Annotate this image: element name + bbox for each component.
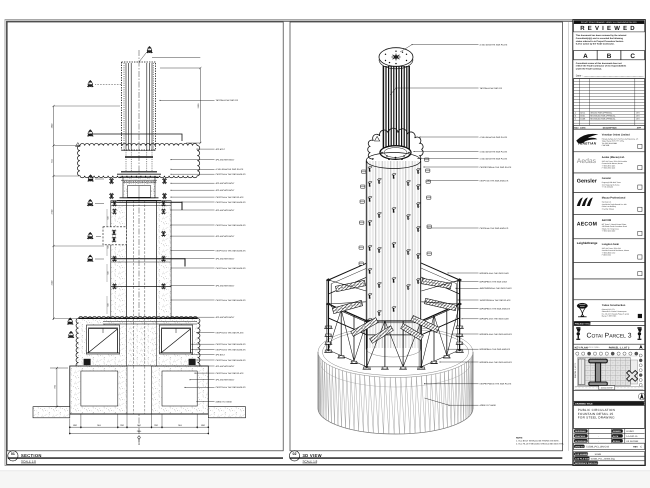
svg-text:2: 2 xyxy=(69,319,70,322)
svg-text:REV.: REV. xyxy=(574,126,579,129)
svg-text:TBTP8mmTHK G&S DS: TBTP8mmTHK G&S DS xyxy=(480,87,503,90)
svg-text:CBTP5mm THK G&S ANGLES: CBTP5mm THK G&S ANGLES xyxy=(480,227,509,230)
svg-text:500: 500 xyxy=(106,216,109,219)
svg-text:04-08: 04-08 xyxy=(580,118,585,121)
svg-text:500: 500 xyxy=(106,271,109,274)
svg-text:4P3 ANCHOR BOLT: 4P3 ANCHOR BOLT xyxy=(216,235,236,238)
svg-text:SCALE 1:8: SCALE 1:8 xyxy=(303,459,318,463)
svg-text:3D VIEW: 3D VIEW xyxy=(303,453,322,458)
svg-text:DESIGNED: DESIGNED xyxy=(575,430,586,433)
svg-text:VENETIAN: VENETIAN xyxy=(578,141,597,145)
svg-text:LEUNG: LEUNG xyxy=(626,430,634,433)
svg-text:150P8TP50mm THK G&S PLATE: 150P8TP50mm THK G&S PLATE xyxy=(480,299,512,302)
svg-text:02: 02 xyxy=(293,452,297,456)
svg-text:CHECKED: CHECKED xyxy=(575,435,586,438)
svg-text:FOR STEEL DRAWING: FOR STEEL DRAWING xyxy=(578,416,615,420)
svg-text:50P50P8mm THK G&S DIAG: 50P50P8mm THK G&S DIAG xyxy=(480,281,508,284)
svg-text:Langdon Seah: Langdon Seah xyxy=(602,243,620,246)
svg-text:PROJECT TITLE: PROJECT TITLE xyxy=(575,323,592,326)
svg-text:50P50P8mm THK G&S ANGLES: 50P50P8mm THK G&S ANGLES xyxy=(480,307,511,310)
svg-text:CBTPT5mm THK G&S ANGLES: CBTPT5mm THK G&S ANGLES xyxy=(216,348,247,351)
svg-text:CBTPT5mm THK G&S PLATE: CBTPT5mm THK G&S PLATE xyxy=(216,331,245,334)
svg-text:Consultant review of this docu: Consultant review of this document does … xyxy=(576,62,622,65)
svg-text:APPROVED: APPROVED xyxy=(575,440,587,443)
svg-text:2: 2 xyxy=(148,48,149,51)
svg-text:2: 2 xyxy=(89,201,90,204)
svg-text:ISSUED FOR APPROVAL: ISSUED FOR APPROVAL xyxy=(590,112,612,115)
svg-text:RE-ISSUED FOR APPROVAL: RE-ISSUED FOR APPROVAL xyxy=(590,118,615,121)
svg-text:Yadea Construction: Yadea Construction xyxy=(602,304,626,307)
svg-text:SCALE: SCALE xyxy=(613,440,621,443)
svg-text:AECOM: AECOM xyxy=(602,219,611,222)
svg-text:- N.T.S 1:7,500 -: - N.T.S 1:7,500 - xyxy=(586,346,600,349)
svg-text:REFERENCE DWG FILE NAME: REFERENCE DWG FILE NAME xyxy=(575,462,605,465)
svg-text:A 345 40mmTHK G&S PLATE: A 345 40mmTHK G&S PLATE xyxy=(480,43,508,46)
svg-text:B: B xyxy=(607,53,612,60)
svg-text:C: C xyxy=(630,53,635,60)
svg-text:under the Trade Contract.: under the Trade Contract. xyxy=(576,68,602,71)
svg-text:50P50P8mm THK G&S ANGLES: 50P50P8mm THK G&S ANGLES xyxy=(480,348,511,351)
svg-text:4P3 ANCHOR BOLT: 4P3 ANCHOR BOLT xyxy=(216,158,236,161)
svg-text:Consultant(s)(s) and is accord: Consultant(s)(s) and is accorded the fol… xyxy=(576,37,624,40)
svg-text:RE-ISSUED FOR APPROVAL: RE-ISSUED FOR APPROVAL xyxy=(590,115,615,118)
svg-text:CBTPT5mm THK G&S PLATE: CBTPT5mm THK G&S PLATE xyxy=(216,196,245,199)
svg-text:4 345 40mmTHK G&S PLATE: 4 345 40mmTHK G&S PLATE xyxy=(480,150,508,153)
svg-text:4P3 ANCHOR BOLT: 4P3 ANCHOR BOLT xyxy=(216,182,236,185)
svg-text:500: 500 xyxy=(106,303,109,306)
svg-text:2: 2 xyxy=(89,256,90,259)
svg-text:CAD NUMBER: CAD NUMBER xyxy=(575,453,589,456)
svg-text:DRAWN: DRAWN xyxy=(613,430,621,433)
svg-text:CBTPT5mm THK G&S ANGLES: CBTPT5mm THK G&S ANGLES xyxy=(216,224,247,227)
svg-text:CAD FILE NAME: CAD FILE NAME xyxy=(575,458,591,461)
svg-text:Gensler: Gensler xyxy=(602,177,611,180)
svg-text:A286E R.C BASE: A286E R.C BASE xyxy=(480,404,497,407)
svg-text:02-14: 02-14 xyxy=(580,112,585,115)
svg-text:Venetian Orient Limited: Venetian Orient Limited xyxy=(602,133,630,136)
svg-text:A: A xyxy=(583,53,588,60)
svg-text:NOTE:: NOTE: xyxy=(516,437,523,440)
svg-text:50P50P5.4mm THK G&S DIAG: 50P50P5.4mm THK G&S DIAG xyxy=(480,318,509,321)
svg-text:4P3 ANCHOR BOLT: 4P3 ANCHOR BOLT xyxy=(216,365,236,368)
svg-text:DRAWING TITLE: DRAWING TITLE xyxy=(575,403,593,406)
svg-text:5150B_PCL_BN-D10: 5150B_PCL_BN-D10 xyxy=(586,445,609,448)
svg-text:4P3 ANCHOR BOLT: 4P3 ANCHOR BOLT xyxy=(216,379,236,382)
svg-text:CBTPT5mm THK G&S ANGLES: CBTPT5mm THK G&S ANGLES xyxy=(216,173,247,176)
svg-text:4P3 BOLT: 4P3 BOLT xyxy=(216,353,226,356)
svg-text:APP.: APP. xyxy=(637,126,642,129)
svg-text:2: 2 xyxy=(89,234,90,237)
svg-text:CBTPT5mm THK G&S PLATE: CBTPT5mm THK G&S PLATE xyxy=(216,372,245,375)
svg-text:4P3 ANCHOR BOLT: 4P3 ANCHOR BOLT xyxy=(216,285,236,288)
svg-text:50P50P5.4mm THK G&S ANGLES: 50P50P5.4mm THK G&S ANGLES xyxy=(480,361,513,364)
svg-text:5150B_PCL_2035S.dwg: 5150B_PCL_2035S.dwg xyxy=(591,458,616,461)
svg-text:4P3 BOLT: 4P3 BOLT xyxy=(216,148,226,151)
svg-text:5.4 for action by the Trade Co: 5.4 for action by the Trade Contractor. xyxy=(576,43,615,46)
svg-text:5150B: 5150B xyxy=(595,453,602,456)
svg-text:50P50P5.4mm THK G&S DIAG: 50P50P5.4mm THK G&S DIAG xyxy=(480,272,509,275)
svg-text:2: 2 xyxy=(89,82,90,85)
svg-text:SCALE 1:8: SCALE 1:8 xyxy=(21,459,36,463)
svg-text:CBTP8TP50mm THK G&S PLATE: CBTP8TP50mm THK G&S PLATE xyxy=(480,383,512,386)
svg-text:COTAI STRIP: COTAI STRIP xyxy=(601,387,613,390)
svg-text:This document has been reviewe: This document has been reviewed by the r… xyxy=(576,34,627,37)
svg-text:2: 2 xyxy=(90,176,91,179)
svg-text:TBTP8mmTHK G&S DS: TBTP8mmTHK G&S DS xyxy=(216,99,239,102)
svg-text:14-AUG-15: 14-AUG-15 xyxy=(626,435,638,438)
svg-text:Gensler: Gensler xyxy=(577,179,598,185)
svg-text:4P3 ANCHOR BOLT: 4P3 ANCHOR BOLT xyxy=(216,189,236,192)
svg-text:CBTPT5mm THK G&S ANGLES: CBTPT5mm THK G&S ANGLES xyxy=(216,299,247,302)
svg-text:CBTPT5mm THK G&S ANGLES: CBTPT5mm THK G&S ANGLES xyxy=(216,359,247,362)
svg-text:Aedas: Aedas xyxy=(577,158,597,165)
svg-text:4P3 ANCHOR BOLT: 4P3 ANCHOR BOLT xyxy=(216,316,236,319)
svg-text:4P3 ANCHOR BOLT: 4P3 ANCHOR BOLT xyxy=(216,209,236,212)
svg-text:CBTPT5mm THK G&S ANGLES: CBTPT5mm THK G&S ANGLES xyxy=(216,267,247,270)
svg-text:CBTPT5mm THK G&S ANGLES: CBTPT5mm THK G&S ANGLES xyxy=(216,343,247,346)
svg-text:COTAI PARCEL 3: COTAI PARCEL 3 xyxy=(587,333,632,340)
svg-text:4P3 ANCHOR BOLT: 4P3 ANCHOR BOLT xyxy=(216,258,236,261)
svg-text:01: 01 xyxy=(11,452,15,456)
svg-text:4B0P350P50mm THK G&S PLATE: 4B0P350P50mm THK G&S PLATE xyxy=(480,287,513,290)
svg-text:C: C xyxy=(640,445,642,448)
svg-text:status referred to in Projec: status referred to in Project Procedure … xyxy=(576,40,624,43)
svg-text:2: 2 xyxy=(89,131,90,134)
svg-text:PARCEL 1, LOT 2: PARCEL 1, LOT 2 xyxy=(609,346,630,349)
svg-text:DATE: DATE xyxy=(613,435,619,438)
svg-text:Aedas (Macau) Ltd.: Aedas (Macau) Ltd. xyxy=(602,156,625,159)
svg-text:4 345 40mmTHK G&S PLATE: 4 345 40mmTHK G&S PLATE xyxy=(480,136,508,139)
svg-text:REV: REV xyxy=(633,445,638,448)
svg-text:50P50P5.4mm THK G&S ANGLES: 50P50P5.4mm THK G&S ANGLES xyxy=(480,333,513,336)
svg-text:DATE: DATE xyxy=(580,126,586,129)
svg-text:DESCRIPTION: DESCRIPTION xyxy=(603,126,617,129)
svg-text:DO NOT SCALE DRAWING. VERIFY A: DO NOT SCALE DRAWING. VERIFY ALL DIMENSI… xyxy=(581,21,638,24)
svg-text:REVIEWED: REVIEWED xyxy=(580,25,638,32)
svg-text:CBTP7mm THK G&S ANGLES: CBTP7mm THK G&S ANGLES xyxy=(480,179,509,182)
svg-text:relieve the Trade Contractor o: relieve the Trade Contractor of its resp… xyxy=(576,65,627,68)
svg-text:CBTP8TP50mm THK G&S PLATE: CBTP8TP50mm THK G&S PLATE xyxy=(480,166,512,169)
svg-text:AECOM: AECOM xyxy=(577,222,597,228)
svg-text:Leigh&Orange: Leigh&Orange xyxy=(577,241,598,245)
svg-text:Macau Professional: Macau Professional xyxy=(602,197,626,200)
svg-text:AS SHOWN: AS SHOWN xyxy=(626,440,638,443)
svg-text:03-21: 03-21 xyxy=(580,115,585,118)
svg-text:CBTPT5mm THK G&S ANGLES: CBTPT5mm THK G&S ANGLES xyxy=(216,250,247,253)
svg-text:CBTPT5mm THK G&S ANGLES: CBTPT5mm THK G&S ANGLES xyxy=(216,386,247,389)
svg-text:CBTPT5mm THK G&S ANGLES: CBTPT5mm THK G&S ANGLES xyxy=(216,201,247,204)
svg-text:4 345 40mmTHK G&S PLATE: 4 345 40mmTHK G&S PLATE xyxy=(480,157,508,160)
svg-text:2. ALL FILLET WELDED SHOULD BE: 2. ALL FILLET WELDED SHOULD BE 8mm THK. xyxy=(516,443,564,446)
svg-text:A286E R.C BASE: A286E R.C BASE xyxy=(216,400,233,403)
svg-text:2: 2 xyxy=(70,333,71,336)
svg-text:1. ALL BOLT SHOULD BE FIXING O: 1. ALL BOLT SHOULD BE FIXING ON SITE. xyxy=(516,440,560,443)
svg-text:PARCEL 1, LOT 1: PARCEL 1, LOT 1 xyxy=(574,363,577,378)
svg-text:Date :: Date : xyxy=(576,75,583,78)
svg-text:SECTION: SECTION xyxy=(21,453,42,458)
svg-text:500: 500 xyxy=(106,245,109,248)
svg-text:A 345 40mmTHK G&S PLATE: A 345 40mmTHK G&S PLATE xyxy=(216,168,244,171)
svg-text:DWG NO: DWG NO xyxy=(575,445,584,448)
